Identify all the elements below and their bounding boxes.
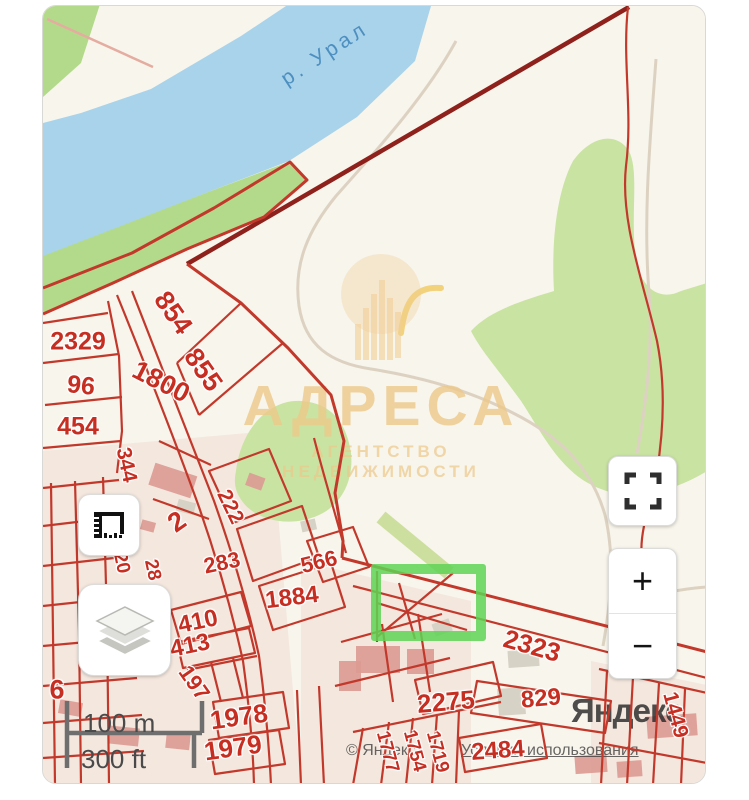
map-card[interactable]: АДРЕСА АГЕНТСТВО НЕДВИЖИМОСТИ © Яндекс У… bbox=[42, 5, 706, 784]
scale-bar bbox=[43, 6, 706, 784]
scale-imperial: 300 ft bbox=[81, 744, 146, 775]
scale-metric: 100 m bbox=[83, 708, 155, 739]
